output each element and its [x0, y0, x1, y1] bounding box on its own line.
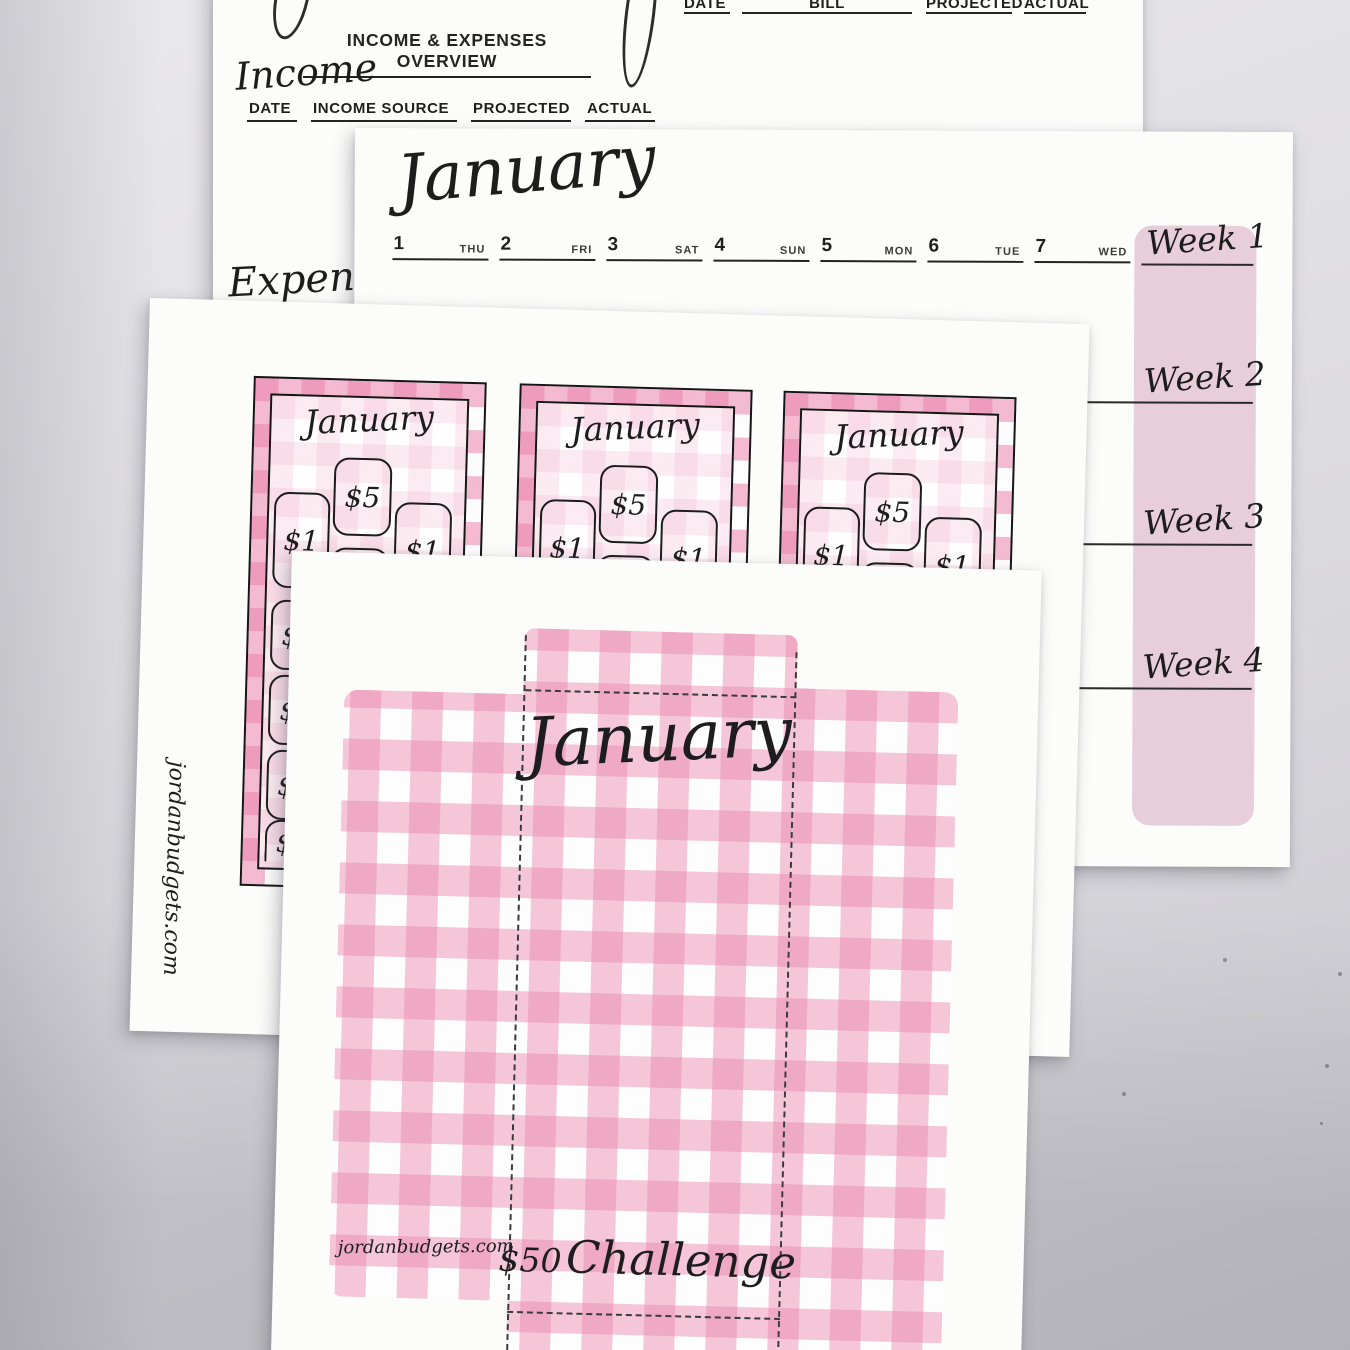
day-slot-1: 1 THU	[392, 228, 488, 260]
fabric-speck	[1338, 972, 1342, 976]
day-number: 1	[393, 233, 404, 255]
envelope-month-title: January	[521, 693, 797, 784]
day-number: 3	[607, 234, 618, 256]
day-number: 6	[928, 236, 939, 258]
fabric-speck	[1223, 958, 1227, 962]
week-label-3: Week 3	[1142, 496, 1266, 543]
envelope-right-flap	[779, 688, 958, 1350]
day-abbr: WED	[1098, 246, 1127, 258]
income-header-date: DATE	[247, 100, 297, 122]
week-label-1: Week 1	[1145, 216, 1269, 263]
day-abbr: TUE	[995, 246, 1020, 258]
bill-header-actual: ACTUAL	[1024, 0, 1086, 14]
amount-text: $5	[610, 487, 647, 521]
income-header-row: DATE INCOME SOURCE PROJECTED ACTUAL	[247, 100, 655, 122]
weekly-month-title: January	[394, 120, 659, 218]
site-watermark: jordanbudgets.com	[338, 1236, 502, 1258]
amount-box-5: $5	[332, 457, 392, 537]
day-slot-7: 7 WED	[1034, 231, 1130, 263]
fabric-speck	[1320, 1122, 1323, 1125]
income-header-source: INCOME SOURCE	[311, 100, 457, 122]
bill-header-bill: BILL	[742, 0, 912, 14]
envelope-sheet: January $50 Challenge jordanbudgets.com	[271, 551, 1042, 1350]
week-label-2: Week 2	[1143, 354, 1267, 401]
amount-box-5: $5	[598, 465, 658, 545]
card-month-title: January	[271, 396, 467, 443]
envelope-left-flap	[329, 689, 524, 1300]
day-abbr: THU	[460, 243, 486, 255]
bill-header-date: DATE	[684, 0, 730, 14]
income-script-label: Income	[234, 45, 379, 99]
amount-text: $5	[874, 495, 911, 529]
week-label-4: Week 4	[1142, 640, 1266, 687]
income-header-actual: ACTUAL	[585, 100, 655, 122]
site-watermark-vertical: jordanbudgets.com	[158, 761, 189, 977]
day-slot-5: 5 MON	[820, 230, 916, 262]
day-number: 7	[1035, 236, 1046, 258]
day-slot-4: 4 SUN	[713, 230, 809, 262]
fabric-speck	[1325, 1064, 1329, 1068]
bill-header-projected: PROJECTED	[926, 0, 1012, 14]
card-month-title: January	[801, 411, 997, 458]
background-shadow	[0, 0, 160, 1350]
fabric-speck	[1122, 1092, 1126, 1096]
card-month-title: January	[537, 404, 733, 451]
day-slot-6: 6 TUE	[927, 230, 1023, 262]
script-descender	[616, 0, 664, 89]
day-abbr: SAT	[675, 244, 700, 256]
day-number: 4	[714, 235, 725, 257]
day-slot-3: 3 SAT	[606, 229, 702, 261]
day-abbr: FRI	[571, 244, 592, 256]
challenge-label: $50 Challenge	[498, 1229, 792, 1290]
amount-box-5: $5	[862, 472, 922, 552]
day-number: 5	[821, 235, 832, 257]
day-abbr: MON	[884, 245, 913, 257]
photo-of-budget-printables: INCOME & EXPENSES OVERVIEW Income DATE I…	[0, 0, 1350, 1350]
income-header-projected: PROJECTED	[471, 100, 571, 122]
challenge-word: Challenge	[565, 1230, 796, 1289]
day-slot-2: 2 FRI	[499, 229, 595, 261]
day-number: 2	[500, 234, 511, 256]
amount-text: $5	[344, 480, 381, 514]
day-abbr: SUN	[780, 245, 807, 257]
